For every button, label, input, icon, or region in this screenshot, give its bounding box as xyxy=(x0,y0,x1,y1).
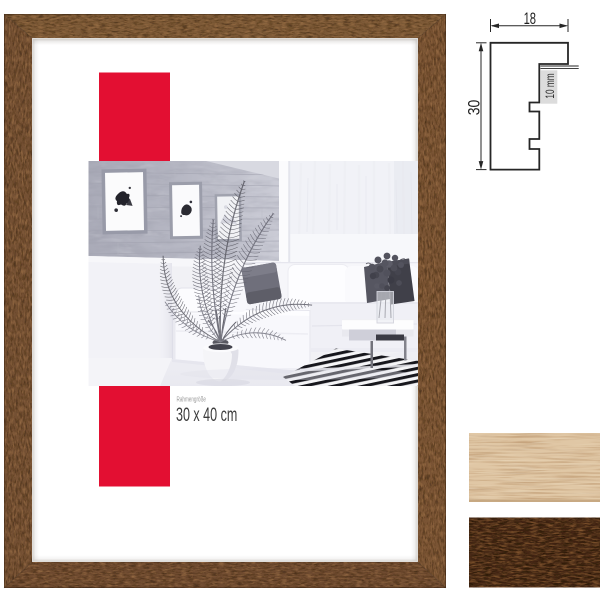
svg-text:30: 30 xyxy=(465,100,483,116)
svg-text:18: 18 xyxy=(524,10,536,29)
svg-text:30 x 40 cm: 30 x 40 cm xyxy=(176,404,237,425)
svg-text:10 mm: 10 mm xyxy=(545,73,558,98)
svg-text:Rahmengröße: Rahmengröße xyxy=(177,397,207,404)
